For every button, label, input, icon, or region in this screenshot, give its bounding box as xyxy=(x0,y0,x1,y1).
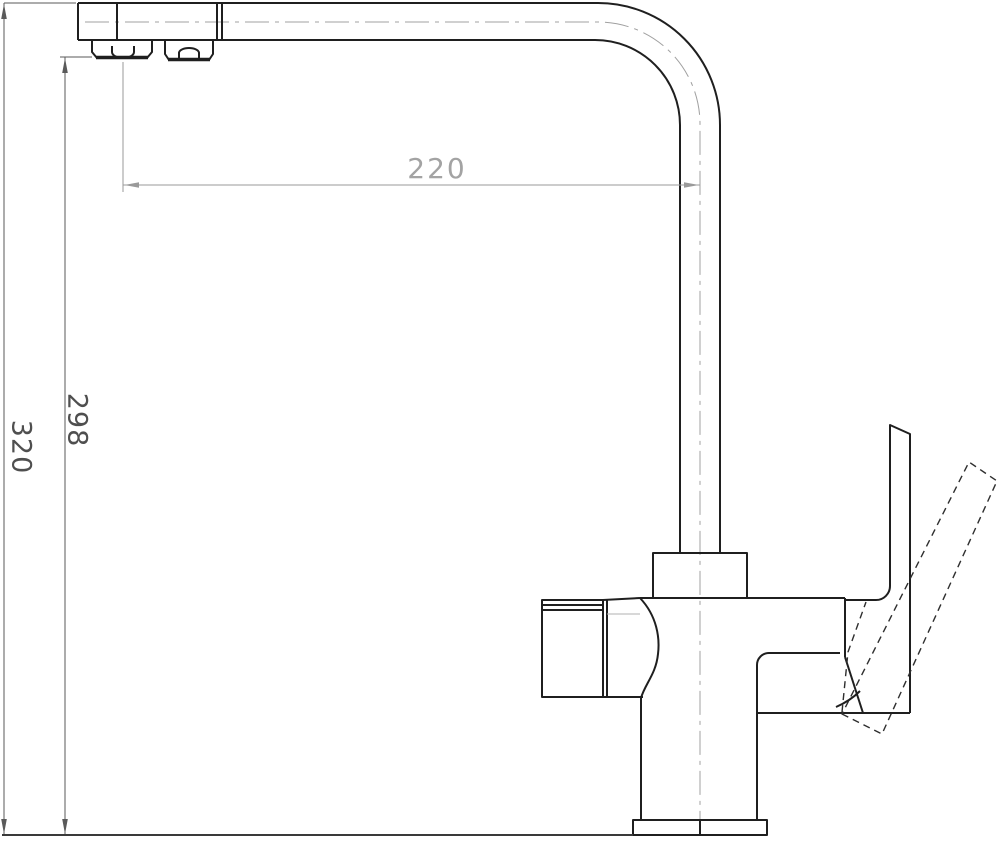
spout-pipe-outer xyxy=(78,3,720,553)
side-knob xyxy=(542,600,603,697)
dim-320-arrow-up-icon xyxy=(1,4,7,19)
dim-220-arrow-right-icon xyxy=(684,182,699,188)
dimension-label-220: 220 xyxy=(407,152,466,185)
dim-298-arrow-up-icon xyxy=(62,58,68,73)
body-right-notch xyxy=(757,653,840,713)
side-knob-band xyxy=(542,605,603,610)
side-knob-stem xyxy=(603,598,643,697)
filter-nozzle xyxy=(165,40,213,60)
flow-centerline xyxy=(85,22,700,840)
handle-alt-position xyxy=(842,462,997,734)
faucet-technical-drawing: 320 298 220 xyxy=(0,0,1000,845)
dimension-label-298: 298 xyxy=(62,393,93,448)
dimension-label-320: 320 xyxy=(6,420,37,475)
faucet-outline xyxy=(78,3,910,835)
handle-hinge-wedge xyxy=(845,657,863,713)
aerator-nozzle xyxy=(92,40,152,58)
drawing-canvas: 320 298 220 xyxy=(0,0,1000,845)
spout-pipe-inner xyxy=(78,40,680,553)
dimension-outlet-height: 298 xyxy=(60,57,93,835)
dim-220-arrow-left-icon xyxy=(124,182,139,188)
dim-320-arrow-down-icon xyxy=(1,819,7,834)
dim-298-arrow-down-icon xyxy=(62,819,68,834)
body-left-profile xyxy=(640,598,659,820)
dimension-spout-reach: 220 xyxy=(123,62,700,192)
centerlines xyxy=(85,22,700,840)
handle-lever-dashed-outline xyxy=(842,462,997,734)
handle-blade xyxy=(876,425,910,713)
handle-hinge-arc xyxy=(836,691,860,707)
